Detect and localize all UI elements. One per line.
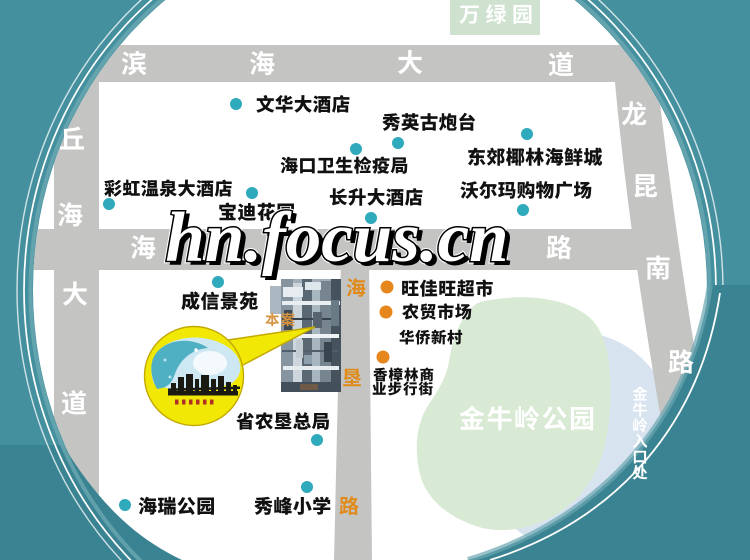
svg-text:hn.focus.cn: hn.focus.cn bbox=[165, 199, 508, 277]
